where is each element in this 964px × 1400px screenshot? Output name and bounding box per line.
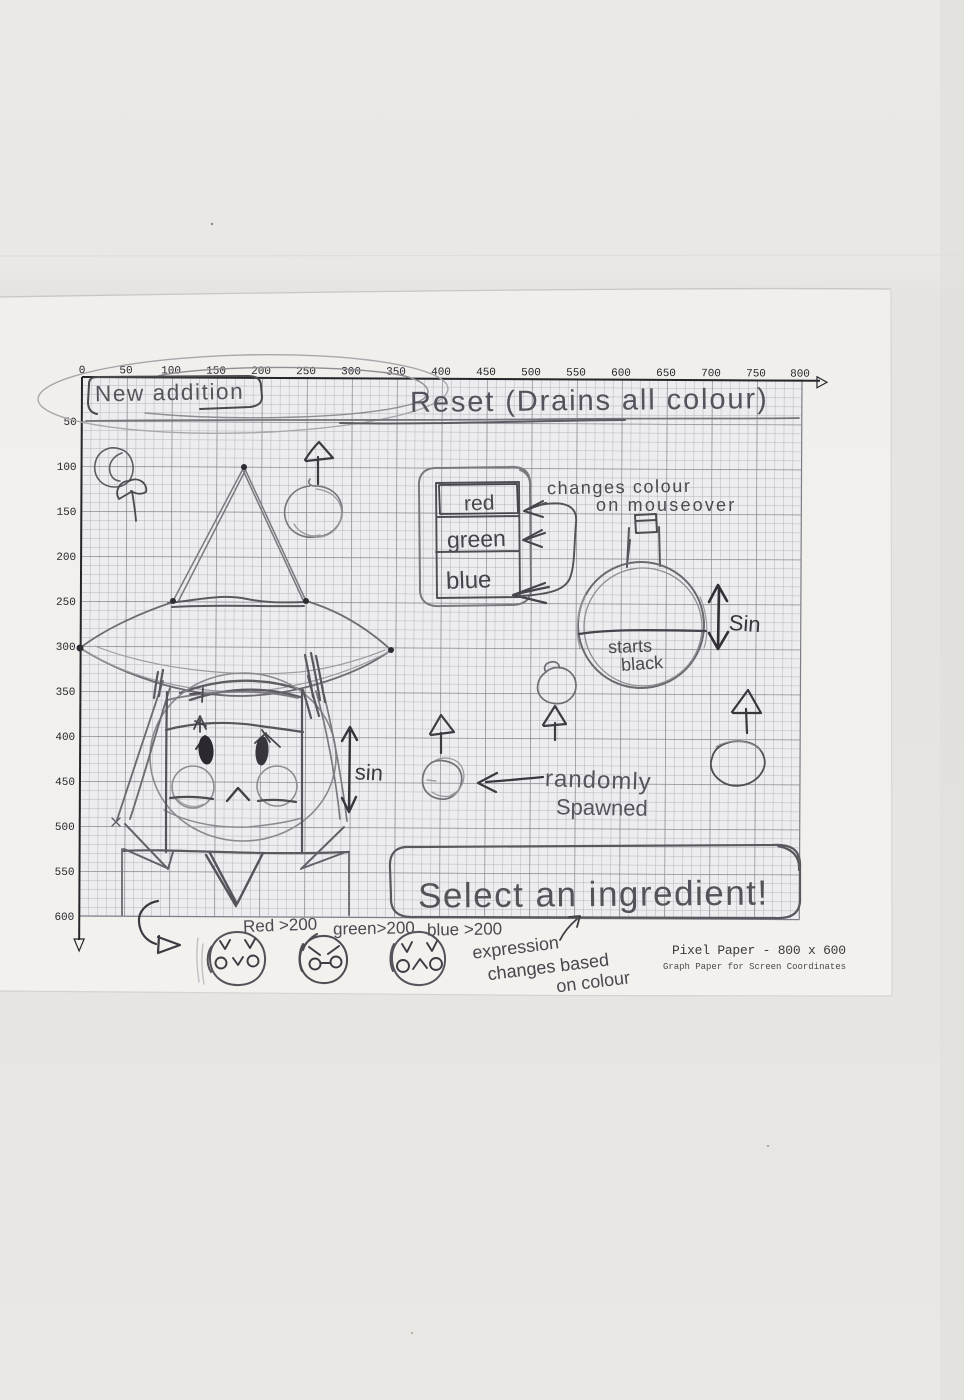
svg-text:550: 550 <box>566 367 586 379</box>
svg-text:sin: sin <box>354 759 383 785</box>
svg-text:300: 300 <box>56 642 76 654</box>
svg-text:Spawned: Spawned <box>556 794 648 821</box>
svg-text:250: 250 <box>56 597 76 609</box>
svg-text:red: red <box>464 492 495 516</box>
svg-text:Graph Paper for Screen Coordin: Graph Paper for Screen Coordinates <box>663 962 846 972</box>
svg-text:350: 350 <box>56 687 76 699</box>
svg-text:on mouseover: on mouseover <box>596 495 736 515</box>
svg-text:green: green <box>447 525 507 553</box>
svg-text:500: 500 <box>521 367 541 379</box>
svg-text:blue: blue <box>446 566 492 595</box>
svg-text:450: 450 <box>55 777 75 789</box>
svg-text:New addition: New addition <box>95 379 245 407</box>
svg-text:Pixel Paper - 800 x 600: Pixel Paper - 800 x 600 <box>672 943 846 958</box>
svg-text:Select an ingredient!: Select an ingredient! <box>418 874 769 916</box>
svg-text:Sin: Sin <box>728 610 761 637</box>
svg-text:700: 700 <box>701 368 721 380</box>
svg-text:550: 550 <box>55 867 75 879</box>
svg-text:400: 400 <box>55 732 75 744</box>
svg-text:450: 450 <box>476 367 496 379</box>
svg-text:Reset (Drains all colour): Reset (Drains all colour) <box>410 383 769 419</box>
svg-text:750: 750 <box>746 368 766 380</box>
svg-text:600: 600 <box>54 912 74 924</box>
svg-text:600: 600 <box>611 368 631 380</box>
svg-text:100: 100 <box>57 462 77 474</box>
svg-text:Red >200: Red >200 <box>243 915 318 937</box>
svg-text:800: 800 <box>790 369 810 381</box>
svg-text:650: 650 <box>656 368 676 380</box>
svg-text:300: 300 <box>341 366 361 378</box>
svg-text:200: 200 <box>56 552 76 564</box>
svg-text:blue >200: blue >200 <box>427 919 502 939</box>
svg-text:black: black <box>620 652 664 675</box>
svg-text:randomly: randomly <box>545 765 653 796</box>
svg-text:400: 400 <box>431 367 451 379</box>
svg-text:50: 50 <box>119 365 132 377</box>
svg-text:150: 150 <box>56 507 76 519</box>
svg-text:500: 500 <box>55 822 75 834</box>
